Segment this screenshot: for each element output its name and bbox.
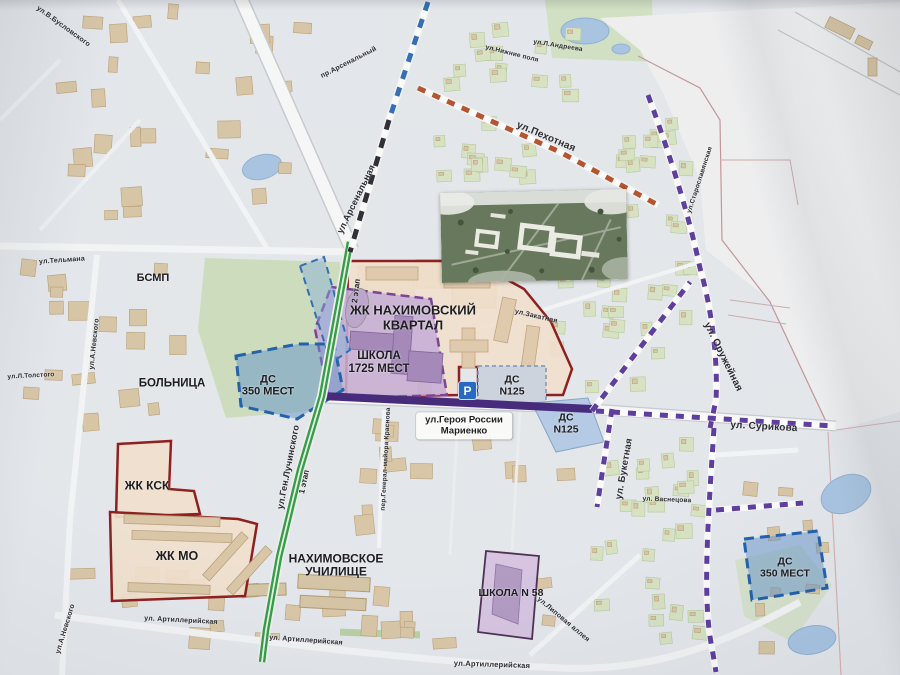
zone-label-school-58: ШКОЛА N 58: [479, 588, 544, 600]
street-label-marienko: ул.Героя России Мариенко: [416, 412, 512, 439]
zone-label-zhk-ksk: ЖК КСК: [125, 479, 170, 492]
zone-label-ds350-right: ДС 350 МЕСТ: [760, 556, 810, 580]
facility-label-nakhimov-college: НАХИМОВСКОЕ УЧИЛИЩЕ: [289, 553, 384, 580]
facility-label-bsmp: БСМП: [137, 272, 170, 284]
zone-label-ds350-left: ДС 350 МЕСТ: [242, 374, 294, 399]
render-inset-photo: [440, 189, 628, 283]
zone-label-ds125-b: ДС N125: [553, 412, 578, 436]
zone-label-school-1725: ШКОЛА 1725 МЕСТ: [348, 350, 409, 376]
render-inset-graphic: [440, 189, 628, 283]
printed-masterplan-map-photo: P ЖК НАХИМОВСКИЙ КВАРТАЛ ШКОЛА 1725 МЕСТ…: [0, 0, 900, 675]
zone-label-nakhimovsky-kvartal: ЖК НАХИМОВСКИЙ КВАРТАЛ: [350, 303, 476, 332]
zone-label-ds125-a: ДС N125: [499, 374, 524, 398]
facility-label-hospital: БОЛЬНИЦА: [139, 378, 206, 391]
zone-label-zhk-mo: ЖК МО: [156, 549, 199, 563]
parking-icon: P: [458, 381, 477, 400]
